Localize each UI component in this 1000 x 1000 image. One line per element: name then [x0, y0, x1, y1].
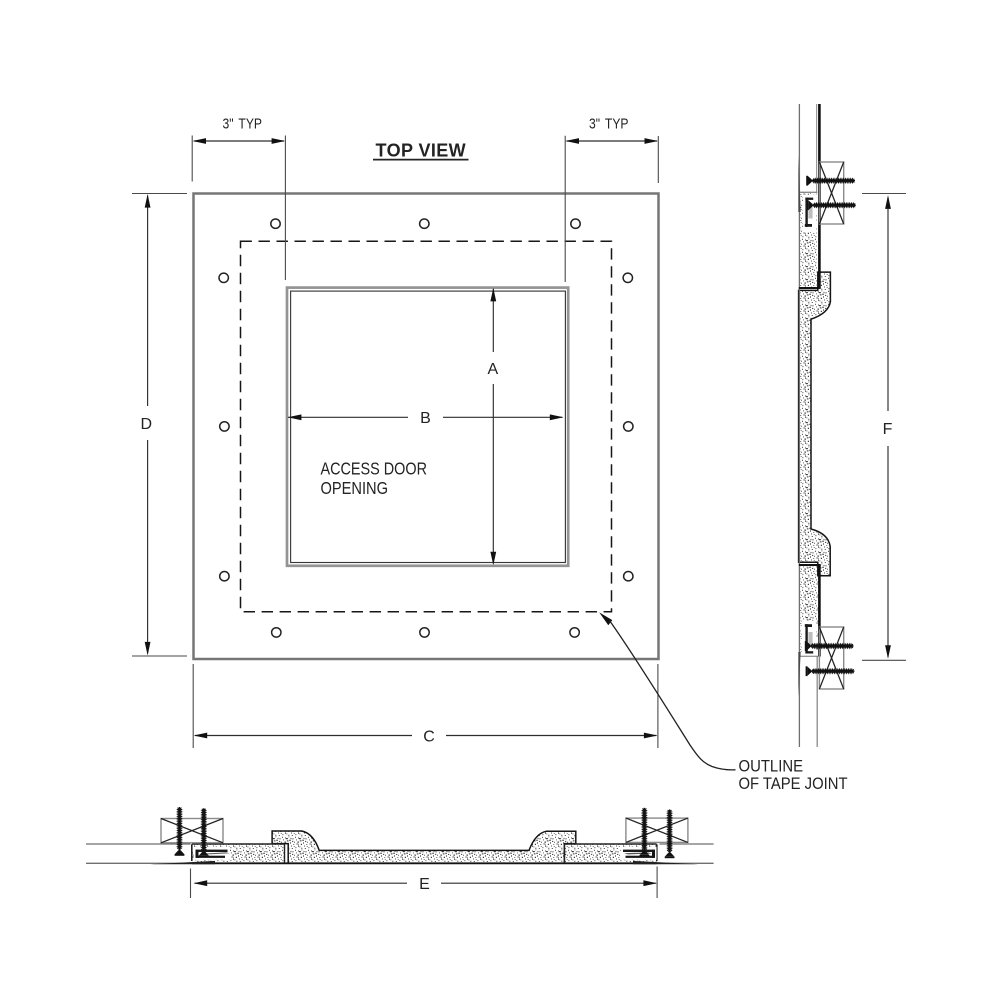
- svg-text:TOP VIEW: TOP VIEW: [376, 140, 467, 160]
- svg-text:3" TYP: 3" TYP: [223, 117, 263, 133]
- svg-text:OF TAPE JOINT: OF TAPE JOINT: [739, 774, 848, 793]
- svg-text:E: E: [419, 876, 430, 893]
- svg-text:ACCESS DOOR: ACCESS DOOR: [321, 459, 428, 479]
- svg-text:A: A: [487, 361, 498, 378]
- svg-text:B: B: [420, 410, 431, 427]
- svg-text:C: C: [423, 728, 435, 745]
- svg-text:OPENING: OPENING: [321, 478, 389, 498]
- svg-text:3" TYP: 3" TYP: [589, 117, 629, 133]
- svg-text:F: F: [883, 421, 893, 438]
- svg-text:D: D: [141, 416, 153, 433]
- svg-text:OUTLINE: OUTLINE: [739, 757, 804, 776]
